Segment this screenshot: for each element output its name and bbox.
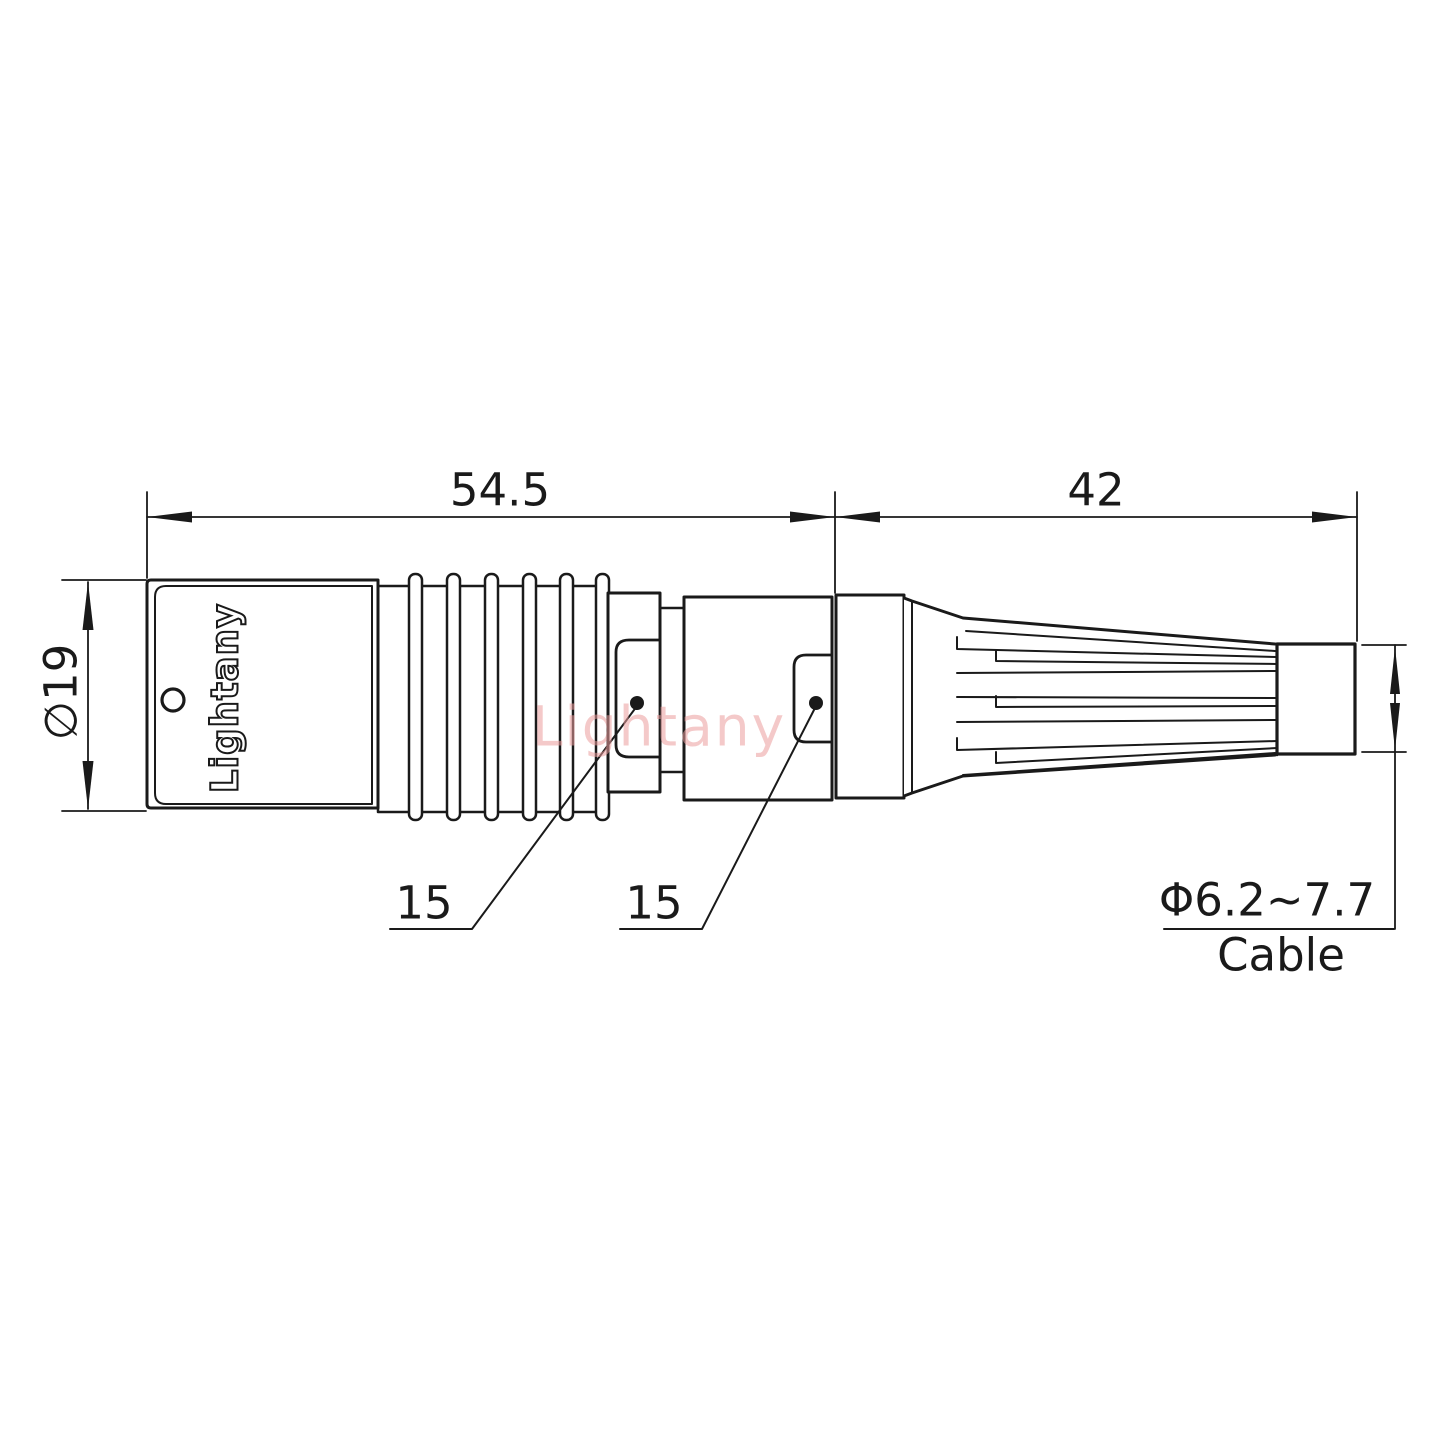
watermark-text: Lightany: [532, 700, 786, 755]
cable-end: [1277, 644, 1355, 754]
cable-label: Cable: [1217, 933, 1345, 978]
dim-cable-range: Φ6.2~7.7: [1159, 878, 1375, 923]
body-brand-label: Lightany: [207, 603, 244, 793]
technical-drawing-canvas: Lightany Lightany 54.5 42 ∅19 15 15 Φ6.2…: [0, 0, 1440, 1440]
strain-relief-boot: [836, 595, 1355, 798]
body-pilot-hole: [162, 689, 184, 711]
dim-keyway-rear: 15: [625, 881, 682, 926]
dim-body-diameter: ∅19: [39, 644, 84, 740]
dim-front-length: 54.5: [450, 468, 550, 513]
dim-keyway-front: 15: [395, 881, 452, 926]
leader-dot-rear: [809, 696, 823, 710]
dim-rear-length: 42: [1067, 468, 1124, 513]
plug-body: [147, 580, 378, 808]
